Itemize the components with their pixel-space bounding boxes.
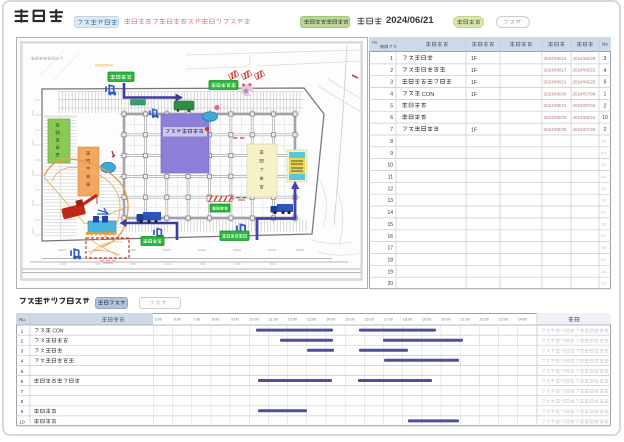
svg-text:0:0: 0:0	[601, 258, 606, 262]
svg-text:13: 13	[387, 198, 393, 204]
svg-text:8: 8	[390, 139, 393, 145]
svg-text:3: 3	[604, 56, 607, 62]
svg-text:0:0: 0:0	[601, 151, 606, 155]
svg-text:5: 5	[21, 369, 24, 375]
svg-text:19: 19	[387, 269, 393, 275]
svg-text:7: 7	[390, 127, 393, 133]
svg-text:18: 18	[387, 257, 393, 263]
svg-text:0:0: 0:0	[601, 234, 606, 238]
svg-text:CON: CON	[422, 92, 434, 98]
svg-text:2: 2	[21, 339, 24, 345]
svg-text:15: 15	[387, 222, 393, 228]
svg-text:6: 6	[21, 379, 24, 385]
svg-text:9: 9	[21, 409, 24, 415]
svg-text:0:0: 0:0	[601, 270, 606, 274]
svg-text:11: 11	[388, 175, 393, 181]
svg-text:2024/06/21: 2024/06/21	[573, 68, 596, 73]
svg-text:2024/06/25: 2024/06/25	[573, 80, 596, 85]
svg-text:0:0: 0:0	[601, 246, 606, 250]
svg-text:2024/07/04: 2024/07/04	[573, 91, 596, 96]
svg-text:7: 7	[21, 389, 24, 395]
svg-text:2024/06/24: 2024/06/24	[544, 56, 567, 61]
svg-text:5: 5	[390, 103, 393, 109]
svg-text:2: 2	[390, 68, 393, 74]
svg-text:20: 20	[387, 281, 393, 287]
svg-text:2024/06/21: 2024/06/21	[544, 103, 567, 108]
svg-text:0:0: 0:0	[601, 187, 606, 191]
svg-text:4: 4	[21, 359, 24, 365]
svg-text:1F: 1F	[471, 127, 477, 133]
svg-text:10: 10	[19, 419, 25, 425]
svg-text:2: 2	[604, 127, 607, 133]
svg-text:2: 2	[604, 103, 607, 109]
svg-text:1F: 1F	[471, 56, 477, 62]
svg-text:0:0: 0:0	[601, 199, 606, 203]
svg-text:1F: 1F	[471, 68, 477, 74]
svg-text:16: 16	[387, 234, 393, 240]
svg-text:2024/06/30: 2024/06/30	[544, 91, 567, 96]
svg-text:12: 12	[387, 186, 393, 192]
svg-text:2024/06/21: 2024/06/21	[544, 80, 567, 85]
svg-text:10: 10	[602, 115, 608, 121]
svg-text:14: 14	[387, 210, 393, 216]
svg-text:0:0: 0:0	[601, 163, 606, 167]
svg-text:0:0: 0:0	[601, 140, 606, 144]
svg-text:0:0: 0:0	[601, 175, 606, 179]
svg-text:1: 1	[21, 328, 24, 334]
svg-text:8: 8	[21, 399, 24, 405]
svg-text:2024/06/30: 2024/06/30	[544, 127, 567, 132]
svg-text:1: 1	[604, 92, 607, 98]
svg-text:10: 10	[387, 163, 393, 169]
svg-text:2024/06/28: 2024/06/28	[573, 56, 596, 61]
svg-text:1: 1	[390, 56, 393, 62]
svg-text:0:0: 0:0	[601, 282, 606, 286]
svg-text:2024/07/04: 2024/07/04	[573, 103, 596, 108]
svg-text:2024/06/24: 2024/06/24	[573, 115, 596, 120]
svg-text:4: 4	[390, 92, 393, 98]
svg-text:2024/06/20: 2024/06/20	[544, 115, 567, 120]
svg-text:3: 3	[21, 349, 24, 355]
svg-text:0:0: 0:0	[601, 222, 606, 226]
svg-text:2024/07/25: 2024/07/25	[573, 127, 596, 132]
svg-text:2024/06/17: 2024/06/17	[544, 68, 567, 73]
svg-text:6: 6	[604, 80, 607, 86]
svg-text:0:0: 0:0	[601, 211, 606, 215]
svg-text:1F: 1F	[471, 92, 477, 98]
svg-text:4: 4	[604, 68, 607, 74]
svg-text:CON: CON	[52, 328, 64, 334]
svg-text:9: 9	[390, 151, 393, 157]
svg-text:6: 6	[390, 115, 393, 121]
svg-text:17: 17	[387, 246, 393, 252]
svg-text:1F: 1F	[471, 80, 477, 86]
svg-text:3: 3	[390, 80, 393, 86]
